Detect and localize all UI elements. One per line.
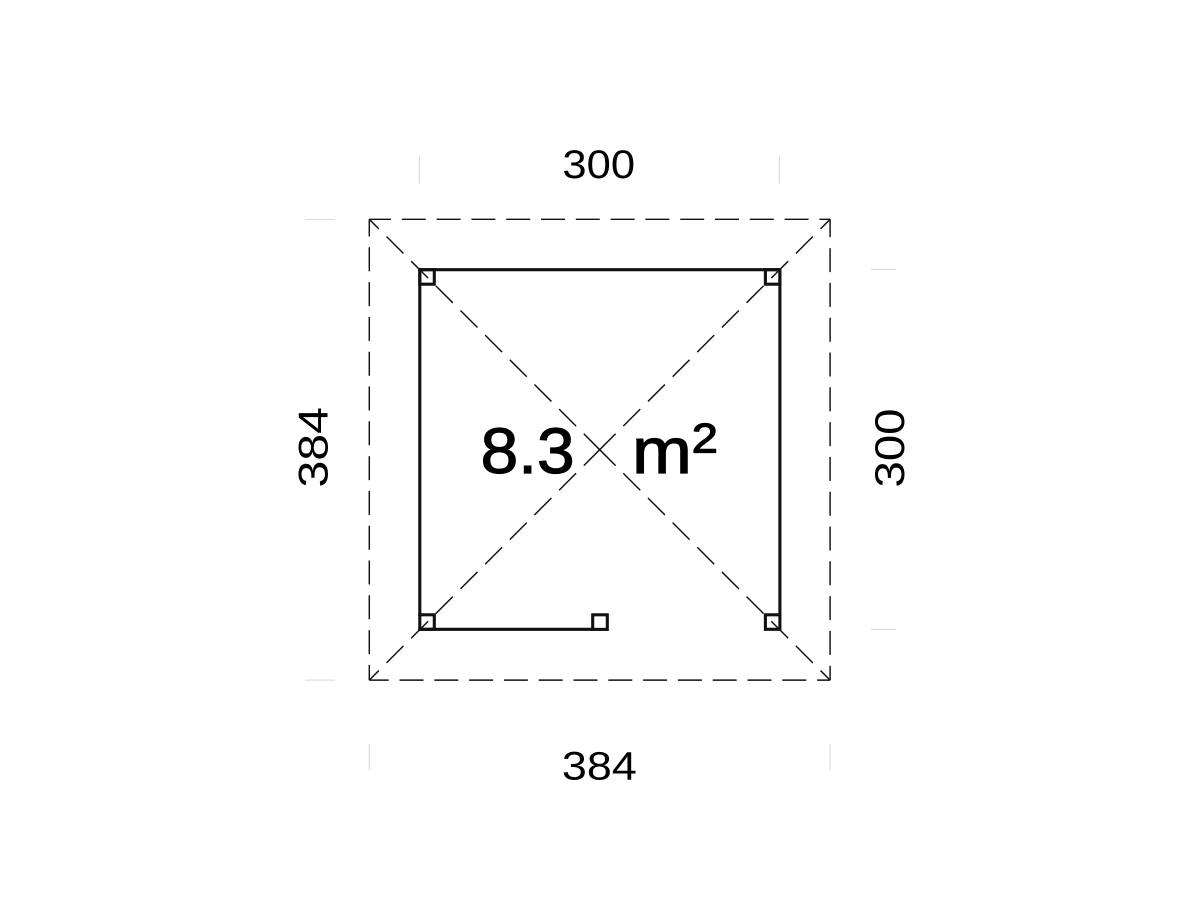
svg-text:300: 300 — [866, 408, 913, 487]
svg-text:384: 384 — [289, 407, 336, 487]
svg-text:300: 300 — [562, 142, 635, 187]
svg-text:8.3: 8.3 — [481, 415, 575, 487]
svg-text:m2: m2 — [632, 416, 718, 488]
svg-text:384: 384 — [562, 744, 637, 788]
